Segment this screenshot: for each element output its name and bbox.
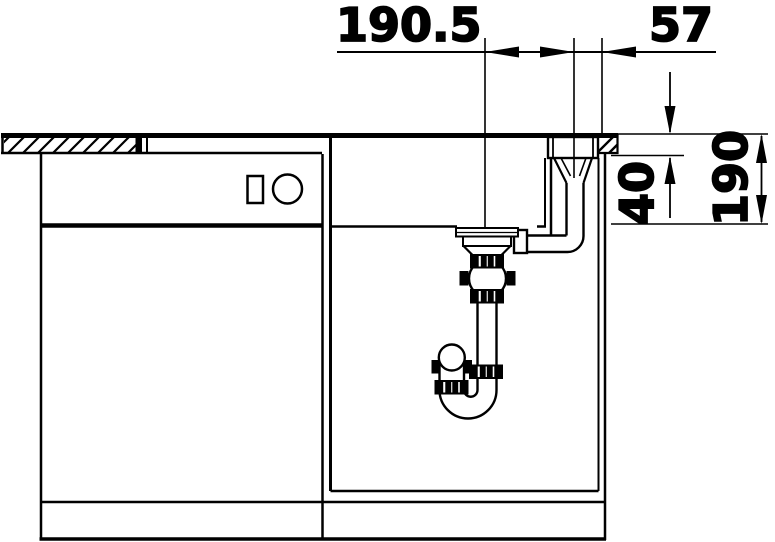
ball-joint-nub-left [460, 271, 469, 286]
dim-label-drain-to-overflow: 190.5 [336, 2, 482, 48]
drain-and-trap [432, 228, 519, 419]
countertop-left-section [0, 130, 618, 156]
overflow-pipe [514, 137, 598, 253]
overflow-head-box [548, 137, 598, 158]
drain-body [463, 237, 511, 247]
arrow-40-down [665, 106, 676, 134]
trap-inlet-head [439, 345, 465, 371]
dim-label-countertop-thickness: 40 [614, 161, 660, 225]
head-nub-left [432, 360, 440, 374]
arrow-57-right [602, 47, 636, 58]
coupling-pipe [470, 366, 502, 379]
drawer-knob-circle [273, 175, 302, 204]
ball-joint-nub-right [507, 271, 516, 286]
cabinet [40, 137, 607, 540]
dim-label-bowl-depth: 190 [708, 130, 754, 226]
overflow-funnel [554, 158, 567, 183]
technical-drawing-sink-installation: 190.5 57 40 190 [0, 0, 775, 542]
sink-bowl [331, 158, 552, 236]
arrow-1905-right [540, 47, 574, 58]
arrow-1905-left [485, 47, 519, 58]
sink-rim-left-cap [136, 137, 143, 154]
dim-label-overflow-to-edge: 57 [649, 2, 713, 48]
coupling-trap-arm [436, 381, 468, 394]
drawer-handle-rect [248, 176, 264, 203]
overflow-elbow [527, 236, 584, 252]
coupling-below-ball [471, 290, 503, 303]
drawing-canvas [0, 0, 775, 542]
arrow-40-up [665, 157, 676, 185]
coupling-upper [471, 255, 503, 268]
